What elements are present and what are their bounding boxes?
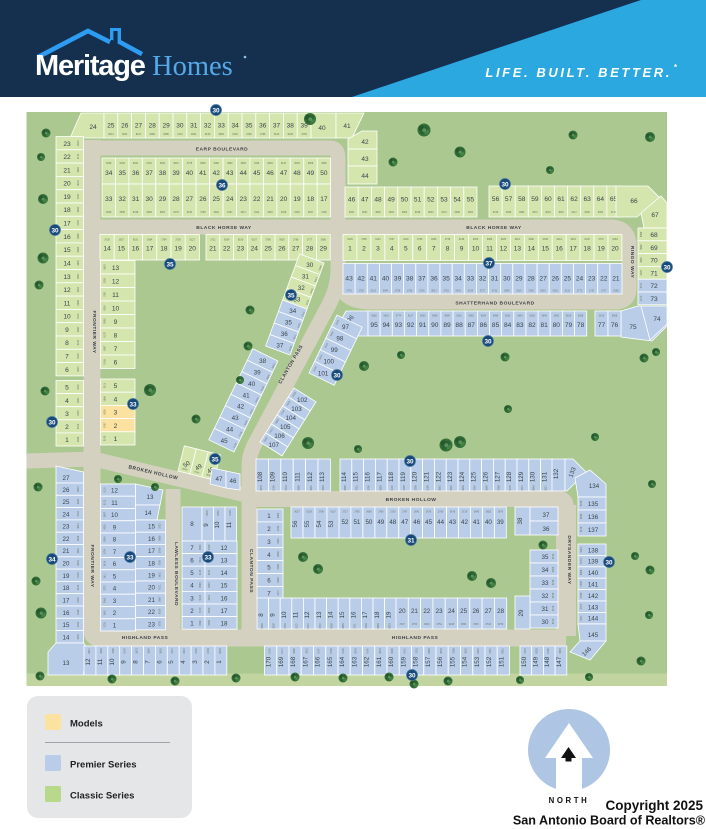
- svg-text:48: 48: [293, 170, 301, 177]
- svg-text:41: 41: [243, 392, 251, 399]
- svg-text:87: 87: [468, 322, 476, 329]
- svg-text:3766: 3766: [452, 648, 455, 654]
- svg-text:3737: 3737: [77, 510, 80, 516]
- svg-text:4: 4: [180, 660, 187, 664]
- svg-text:27: 27: [135, 123, 143, 130]
- svg-text:3641: 3641: [414, 511, 420, 514]
- svg-text:9014: 9014: [557, 238, 563, 241]
- svg-text:169: 169: [278, 656, 285, 667]
- svg-text:114: 114: [341, 472, 348, 482]
- svg-text:9082: 9082: [104, 524, 107, 530]
- svg-text:1: 1: [216, 660, 223, 664]
- svg-text:9174: 9174: [77, 153, 80, 159]
- svg-text:3624: 3624: [77, 286, 80, 292]
- svg-text:3772: 3772: [577, 290, 583, 293]
- svg-text:9060: 9060: [377, 623, 380, 629]
- svg-text:10: 10: [109, 658, 116, 665]
- svg-text:165: 165: [327, 656, 334, 667]
- svg-text:9: 9: [65, 327, 69, 334]
- svg-text:34: 34: [105, 170, 113, 177]
- svg-text:9134: 9134: [391, 485, 394, 491]
- svg-text:3737: 3737: [389, 238, 395, 241]
- svg-text:91: 91: [419, 322, 427, 329]
- svg-text:9120: 9120: [77, 572, 80, 578]
- svg-text:3619: 3619: [599, 315, 605, 318]
- svg-text:7: 7: [267, 591, 271, 598]
- svg-text:3659: 3659: [272, 623, 275, 629]
- svg-text:151: 151: [498, 656, 505, 667]
- svg-text:33: 33: [129, 401, 137, 408]
- svg-text:3762: 3762: [407, 290, 413, 293]
- svg-text:152: 152: [486, 656, 493, 667]
- svg-text:104: 104: [286, 415, 297, 422]
- svg-text:40: 40: [186, 170, 194, 177]
- svg-text:3619: 3619: [571, 238, 577, 241]
- svg-text:21: 21: [209, 246, 217, 253]
- svg-text:58: 58: [518, 196, 526, 203]
- svg-text:9150: 9150: [207, 648, 210, 654]
- svg-text:14: 14: [327, 611, 334, 618]
- svg-text:135: 135: [588, 501, 599, 508]
- svg-text:Classic Series: Classic Series: [70, 791, 134, 802]
- svg-text:127: 127: [494, 471, 501, 482]
- svg-text:9089: 9089: [199, 582, 202, 588]
- svg-text:38: 38: [159, 170, 167, 177]
- svg-text:3618: 3618: [77, 180, 80, 186]
- svg-text:3751: 3751: [436, 623, 442, 626]
- svg-text:11: 11: [293, 611, 300, 618]
- svg-text:69: 69: [650, 245, 658, 252]
- svg-text:11: 11: [226, 521, 233, 528]
- svg-text:31: 31: [407, 537, 415, 544]
- svg-text:33: 33: [105, 196, 113, 203]
- svg-text:105: 105: [280, 424, 291, 431]
- svg-text:EARP BOULEVARD: EARP BOULEVARD: [196, 147, 248, 153]
- svg-text:16: 16: [63, 234, 71, 241]
- svg-text:3790: 3790: [580, 581, 583, 587]
- svg-text:150: 150: [521, 656, 528, 667]
- svg-text:140: 140: [588, 570, 599, 577]
- svg-text:7: 7: [432, 246, 436, 253]
- svg-text:43: 43: [361, 156, 369, 163]
- svg-text:3: 3: [190, 595, 194, 602]
- svg-text:DRYSANDER WAY: DRYSANDER WAY: [566, 535, 572, 585]
- svg-text:32: 32: [204, 123, 212, 130]
- svg-text:9093: 9093: [199, 544, 202, 550]
- svg-text:3654: 3654: [160, 162, 166, 165]
- svg-text:50: 50: [401, 197, 409, 204]
- svg-text:9063: 9063: [505, 315, 511, 318]
- svg-text:35: 35: [166, 261, 174, 268]
- svg-text:43: 43: [226, 170, 234, 177]
- svg-text:9139: 9139: [205, 133, 211, 136]
- svg-text:15: 15: [221, 583, 228, 590]
- svg-text:89: 89: [443, 322, 451, 329]
- svg-text:9: 9: [113, 525, 117, 532]
- svg-text:9185: 9185: [501, 238, 507, 241]
- svg-text:28: 28: [149, 123, 157, 130]
- svg-text:155: 155: [449, 656, 456, 667]
- svg-text:5: 5: [404, 246, 408, 253]
- svg-text:23: 23: [240, 196, 248, 203]
- svg-text:9148: 9148: [342, 648, 345, 654]
- svg-text:3767: 3767: [402, 511, 408, 514]
- svg-text:52: 52: [427, 197, 435, 204]
- svg-text:9114: 9114: [254, 211, 260, 214]
- svg-text:9182: 9182: [585, 211, 591, 214]
- svg-text:2: 2: [204, 660, 211, 664]
- svg-text:3629: 3629: [106, 162, 112, 165]
- svg-text:49: 49: [377, 519, 384, 526]
- svg-text:22: 22: [148, 609, 155, 616]
- svg-text:3752: 3752: [277, 525, 280, 531]
- svg-text:6: 6: [65, 367, 69, 374]
- svg-text:9079: 9079: [206, 510, 209, 516]
- svg-text:3630: 3630: [77, 206, 80, 212]
- svg-text:19: 19: [63, 573, 70, 580]
- svg-text:60: 60: [544, 196, 552, 203]
- svg-text:9054: 9054: [217, 510, 220, 516]
- svg-text:9027: 9027: [294, 511, 300, 514]
- svg-text:3742: 3742: [77, 384, 80, 390]
- svg-text:9147: 9147: [640, 282, 643, 288]
- svg-text:3630: 3630: [506, 211, 512, 214]
- svg-text:3624: 3624: [389, 211, 395, 214]
- svg-text:9131: 9131: [565, 290, 571, 293]
- svg-text:4: 4: [65, 398, 69, 405]
- svg-text:9158: 9158: [613, 290, 619, 293]
- svg-text:3655: 3655: [120, 211, 126, 214]
- svg-text:121: 121: [424, 471, 431, 482]
- svg-text:3661: 3661: [438, 485, 441, 491]
- svg-text:3669: 3669: [504, 290, 510, 293]
- svg-text:61: 61: [557, 196, 565, 203]
- svg-text:50: 50: [365, 519, 372, 526]
- svg-text:143: 143: [588, 604, 599, 611]
- svg-text:63: 63: [584, 196, 592, 203]
- svg-text:166: 166: [315, 656, 322, 667]
- svg-text:9076: 9076: [77, 560, 80, 566]
- svg-text:37: 37: [276, 342, 284, 349]
- svg-text:42: 42: [237, 404, 245, 411]
- svg-text:34: 34: [48, 556, 56, 563]
- svg-text:157: 157: [425, 656, 432, 667]
- svg-text:167: 167: [302, 656, 309, 667]
- svg-text:3731: 3731: [354, 623, 357, 629]
- svg-text:9127: 9127: [136, 133, 142, 136]
- svg-text:3728: 3728: [104, 239, 110, 242]
- svg-text:134: 134: [589, 483, 600, 490]
- svg-text:117: 117: [376, 472, 383, 482]
- svg-text:6: 6: [156, 660, 163, 664]
- svg-text:4: 4: [190, 583, 194, 590]
- svg-text:9050: 9050: [371, 315, 377, 318]
- svg-text:15: 15: [118, 246, 126, 253]
- svg-text:9039: 9039: [543, 238, 549, 241]
- svg-text:27: 27: [485, 608, 492, 615]
- svg-text:33: 33: [542, 580, 549, 587]
- svg-text:29: 29: [320, 246, 328, 253]
- svg-text:6: 6: [267, 578, 271, 585]
- svg-text:3780: 3780: [361, 238, 367, 241]
- svg-text:9098: 9098: [104, 318, 107, 324]
- svg-text:9: 9: [203, 523, 210, 527]
- svg-text:3633: 3633: [77, 498, 80, 504]
- svg-text:30: 30: [663, 264, 671, 271]
- svg-text:HIGHLAND PASS: HIGHLAND PASS: [122, 635, 169, 641]
- svg-text:9175: 9175: [509, 485, 512, 491]
- svg-text:20: 20: [148, 585, 155, 592]
- svg-text:31: 31: [491, 276, 499, 283]
- svg-text:9020: 9020: [388, 623, 391, 629]
- svg-text:161: 161: [376, 656, 383, 667]
- svg-text:40: 40: [485, 519, 492, 526]
- svg-text:9016: 9016: [384, 315, 390, 318]
- svg-text:Meritage: Meritage: [35, 50, 146, 82]
- svg-text:3626: 3626: [77, 436, 80, 442]
- svg-text:56: 56: [292, 520, 299, 527]
- svg-text:156: 156: [437, 656, 444, 667]
- svg-text:9021: 9021: [77, 397, 80, 403]
- svg-text:11: 11: [64, 300, 71, 307]
- svg-text:9145: 9145: [367, 648, 370, 654]
- svg-text:3641: 3641: [122, 133, 128, 136]
- svg-text:17: 17: [570, 246, 578, 253]
- svg-text:9191: 9191: [403, 648, 406, 654]
- svg-text:9083: 9083: [428, 648, 431, 654]
- svg-text:55: 55: [467, 197, 475, 204]
- svg-text:3771: 3771: [277, 590, 280, 596]
- svg-text:9188: 9188: [427, 485, 430, 491]
- svg-text:45: 45: [253, 170, 261, 177]
- svg-text:9024: 9024: [104, 304, 107, 310]
- svg-text:35: 35: [287, 292, 295, 299]
- svg-text:25: 25: [264, 246, 272, 253]
- svg-text:LAWLESS BOULEVARD: LAWLESS BOULEVARD: [173, 542, 179, 606]
- svg-text:9193: 9193: [229, 510, 232, 516]
- svg-text:20: 20: [611, 246, 619, 253]
- svg-text:9083: 9083: [277, 577, 280, 583]
- svg-text:99: 99: [331, 347, 339, 354]
- svg-text:3626: 3626: [77, 166, 80, 172]
- svg-text:3688: 3688: [159, 535, 162, 541]
- svg-text:153: 153: [474, 656, 481, 667]
- svg-text:3643: 3643: [77, 523, 80, 529]
- svg-text:30: 30: [406, 458, 414, 465]
- svg-text:33: 33: [467, 276, 475, 283]
- svg-text:53: 53: [328, 520, 335, 527]
- svg-text:158: 158: [413, 656, 420, 667]
- svg-text:3691: 3691: [214, 211, 220, 214]
- svg-text:19: 19: [597, 246, 605, 253]
- svg-text:3685: 3685: [293, 648, 296, 654]
- svg-text:54: 54: [316, 520, 323, 527]
- svg-text:3637: 3637: [308, 211, 314, 214]
- svg-text:2: 2: [362, 246, 366, 253]
- svg-text:9172: 9172: [296, 623, 299, 629]
- svg-text:10: 10: [472, 246, 480, 253]
- svg-text:5: 5: [65, 385, 69, 392]
- svg-text:18: 18: [221, 621, 228, 628]
- svg-text:3640: 3640: [542, 315, 548, 318]
- svg-text:3727: 3727: [399, 623, 405, 626]
- svg-text:24: 24: [63, 511, 70, 518]
- svg-text:19: 19: [385, 611, 392, 618]
- svg-text:9118: 9118: [254, 162, 260, 165]
- svg-text:BLACK HORSE WAY: BLACK HORSE WAY: [196, 225, 252, 231]
- svg-text:9059: 9059: [279, 239, 285, 242]
- svg-text:39: 39: [254, 370, 262, 377]
- svg-text:132: 132: [553, 468, 560, 479]
- svg-text:3795: 3795: [354, 511, 360, 514]
- svg-text:24: 24: [576, 276, 584, 283]
- svg-text:84: 84: [504, 322, 512, 329]
- svg-text:Homes: Homes: [152, 51, 233, 82]
- svg-text:35: 35: [442, 276, 450, 283]
- svg-text:7: 7: [144, 660, 151, 664]
- svg-text:1: 1: [113, 623, 117, 630]
- svg-text:HIGHLAND PASS: HIGHLAND PASS: [392, 635, 439, 641]
- svg-text:28: 28: [306, 246, 314, 253]
- svg-text:28: 28: [527, 276, 535, 283]
- svg-text:53: 53: [440, 197, 448, 204]
- svg-text:Premier Series: Premier Series: [70, 760, 137, 771]
- svg-text:3760: 3760: [208, 620, 211, 626]
- svg-text:33: 33: [126, 554, 134, 561]
- svg-text:2: 2: [113, 610, 117, 617]
- svg-text:9063: 9063: [277, 512, 280, 518]
- svg-text:77: 77: [598, 322, 606, 329]
- svg-text:3779: 3779: [77, 220, 80, 226]
- svg-text:3759: 3759: [277, 564, 280, 570]
- svg-text:9029: 9029: [536, 648, 539, 654]
- svg-text:49: 49: [307, 170, 315, 177]
- svg-text:9143: 9143: [375, 238, 381, 241]
- svg-text:9094: 9094: [267, 162, 273, 165]
- svg-text:9125: 9125: [195, 648, 198, 654]
- svg-text:9081: 9081: [219, 133, 225, 136]
- svg-text:9197: 9197: [104, 422, 107, 428]
- svg-text:139: 139: [588, 559, 599, 566]
- svg-text:9053: 9053: [473, 238, 479, 241]
- svg-text:3785: 3785: [260, 133, 266, 136]
- svg-text:3: 3: [376, 246, 380, 253]
- svg-text:9195: 9195: [529, 315, 535, 318]
- svg-text:25: 25: [460, 608, 467, 615]
- svg-text:39: 39: [172, 170, 180, 177]
- svg-text:34: 34: [455, 276, 463, 283]
- svg-text:20: 20: [280, 196, 288, 203]
- svg-text:34: 34: [542, 567, 549, 574]
- svg-text:106: 106: [274, 433, 285, 440]
- svg-text:3756: 3756: [175, 239, 181, 242]
- svg-text:16: 16: [221, 595, 228, 602]
- svg-text:33: 33: [204, 554, 212, 561]
- svg-text:137: 137: [588, 527, 599, 534]
- svg-text:164: 164: [339, 656, 346, 667]
- svg-text:22: 22: [423, 608, 430, 615]
- svg-text:9183: 9183: [612, 238, 618, 241]
- svg-text:9184: 9184: [481, 315, 487, 318]
- svg-text:9144: 9144: [77, 313, 80, 319]
- svg-text:9199: 9199: [288, 133, 294, 136]
- svg-text:3781: 3781: [77, 597, 80, 603]
- svg-text:1: 1: [190, 621, 194, 628]
- svg-text:37: 37: [543, 512, 550, 519]
- svg-text:19: 19: [63, 194, 71, 201]
- svg-text:10: 10: [111, 512, 118, 519]
- svg-text:3769: 3769: [159, 547, 162, 553]
- svg-text:9147: 9147: [281, 162, 287, 165]
- svg-text:18: 18: [307, 196, 315, 203]
- svg-text:22: 22: [63, 154, 71, 161]
- svg-text:46: 46: [266, 170, 274, 177]
- svg-text:5: 5: [168, 660, 175, 664]
- svg-text:110: 110: [282, 472, 289, 482]
- svg-text:45: 45: [425, 519, 432, 526]
- svg-text:12: 12: [112, 278, 120, 285]
- svg-text:43: 43: [232, 415, 240, 422]
- svg-text:12: 12: [85, 658, 92, 665]
- svg-text:3731: 3731: [521, 485, 524, 491]
- svg-text:51: 51: [353, 519, 360, 526]
- svg-text:13: 13: [316, 611, 323, 618]
- svg-text:37: 37: [418, 276, 426, 283]
- svg-text:9149: 9149: [124, 648, 127, 654]
- svg-text:9061: 9061: [501, 648, 504, 654]
- svg-text:3744: 3744: [171, 648, 174, 654]
- svg-text:163: 163: [351, 656, 358, 667]
- svg-text:3630: 3630: [104, 264, 107, 270]
- svg-text:3699: 3699: [391, 648, 394, 654]
- svg-text:14: 14: [145, 510, 152, 517]
- svg-text:9139: 9139: [306, 511, 312, 514]
- svg-text:9169: 9169: [159, 608, 162, 614]
- svg-text:3689: 3689: [297, 485, 300, 491]
- svg-text:3780: 3780: [104, 277, 107, 283]
- svg-text:9080: 9080: [77, 299, 80, 305]
- svg-text:31: 31: [542, 606, 549, 613]
- svg-text:22: 22: [253, 196, 261, 203]
- svg-text:3643: 3643: [517, 315, 523, 318]
- svg-text:9073: 9073: [77, 486, 80, 492]
- svg-text:141: 141: [588, 582, 599, 589]
- svg-text:3690: 3690: [227, 162, 233, 165]
- svg-text:30: 30: [51, 227, 59, 234]
- svg-text:42: 42: [361, 139, 369, 146]
- svg-text:81: 81: [541, 322, 549, 329]
- svg-text:11: 11: [486, 246, 493, 253]
- svg-text:3666: 3666: [431, 238, 437, 241]
- svg-text:9021: 9021: [191, 133, 197, 136]
- svg-text:13: 13: [147, 494, 154, 501]
- svg-text:3737: 3737: [589, 290, 595, 293]
- svg-text:9153: 9153: [120, 162, 126, 165]
- svg-text:3667: 3667: [159, 596, 162, 602]
- svg-text:12: 12: [221, 545, 228, 552]
- svg-text:75: 75: [629, 324, 637, 331]
- svg-text:51: 51: [414, 197, 422, 204]
- svg-text:9013: 9013: [199, 557, 202, 563]
- svg-text:3785: 3785: [159, 559, 162, 565]
- svg-text:13: 13: [112, 265, 120, 272]
- svg-text:142: 142: [588, 593, 599, 600]
- svg-text:8: 8: [65, 340, 69, 347]
- svg-text:9181: 9181: [133, 239, 139, 242]
- svg-text:30: 30: [501, 181, 509, 188]
- svg-text:38: 38: [517, 517, 524, 524]
- svg-text:34: 34: [231, 123, 239, 130]
